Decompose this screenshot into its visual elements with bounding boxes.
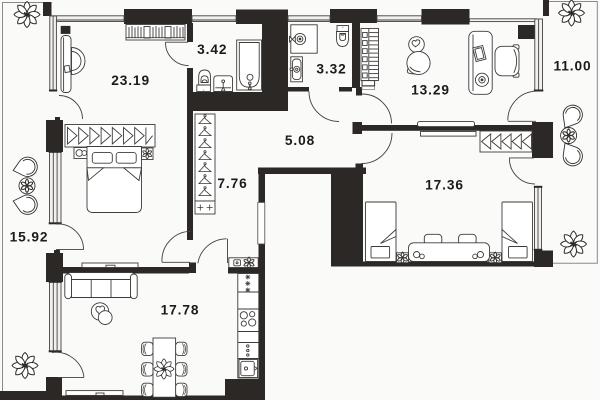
svg-text:7.76: 7.76 <box>217 176 247 191</box>
svg-text:13.29: 13.29 <box>411 83 450 98</box>
svg-text:3.32: 3.32 <box>316 62 346 77</box>
svg-text:23.19: 23.19 <box>111 73 150 88</box>
svg-text:5.08: 5.08 <box>285 133 315 148</box>
svg-text:15.92: 15.92 <box>10 229 49 244</box>
svg-text:17.36: 17.36 <box>425 178 464 193</box>
svg-text:11.00: 11.00 <box>554 59 592 74</box>
svg-text:17.78: 17.78 <box>161 303 200 318</box>
svg-text:3.42: 3.42 <box>197 42 227 57</box>
